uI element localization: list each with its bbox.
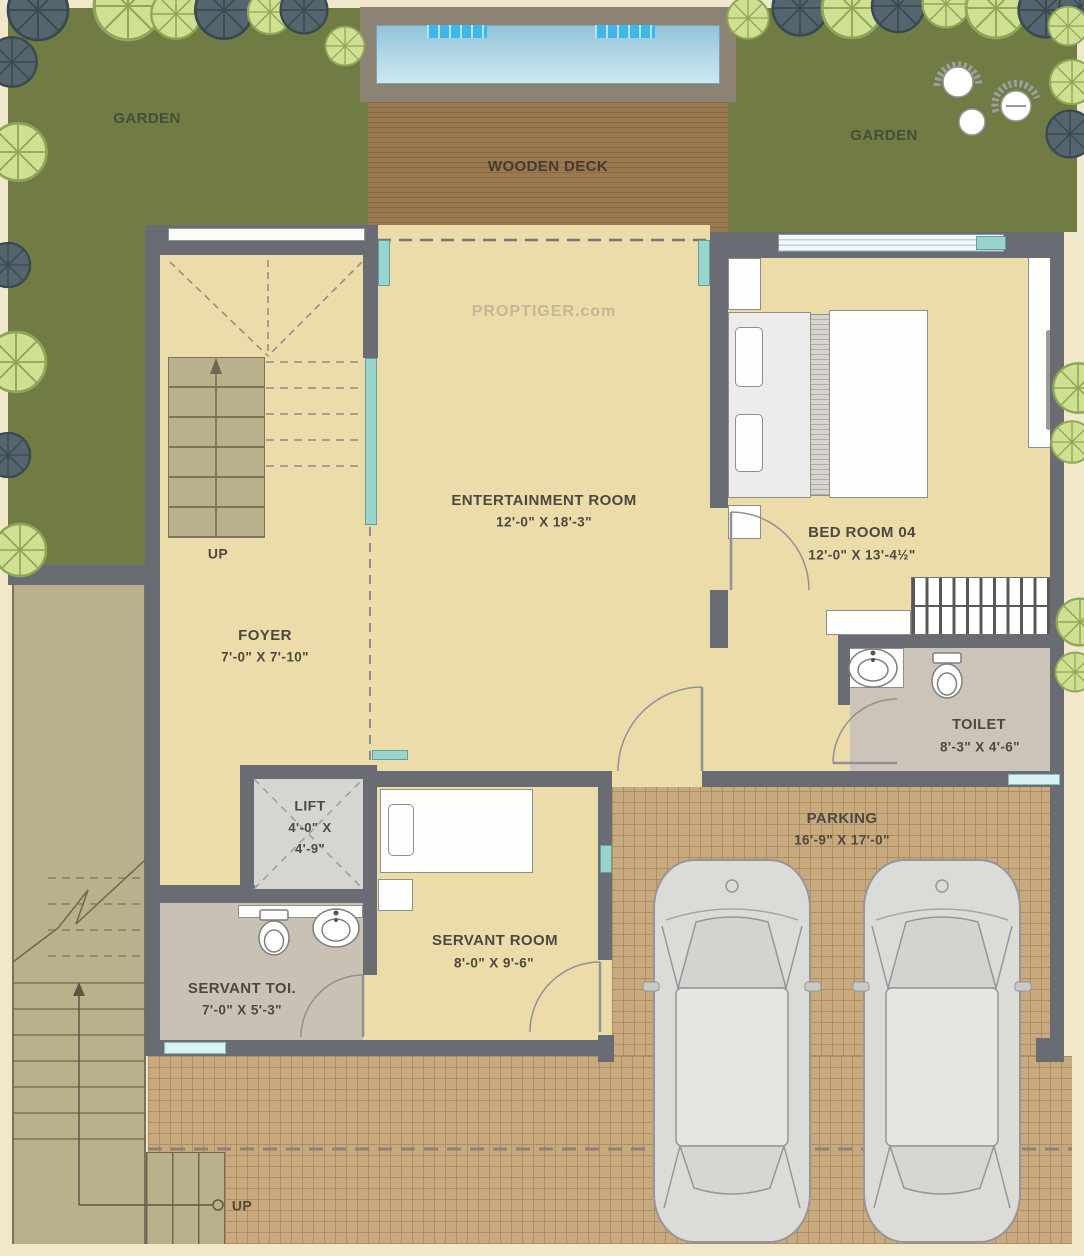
foyer-window <box>168 228 365 241</box>
floor-plan: GARDEN GARDEN WOODEN DECK PROPTIGER.com … <box>0 0 1084 1256</box>
toilet-label: TOILET <box>952 718 1006 734</box>
foyer-label: FOYER <box>238 628 292 645</box>
car-icon <box>643 860 821 1242</box>
parking-dims: 16'-9" X 17'-0" <box>794 834 890 849</box>
entertainment-glass-left <box>378 240 390 286</box>
toilet-fixtures <box>849 649 962 698</box>
trees <box>0 0 1084 691</box>
plan-overlay <box>0 0 1084 1256</box>
entertainment-room-label: ENTERTAINMENT ROOM <box>451 493 636 510</box>
toilet-window <box>1008 774 1060 785</box>
servant-toilet-window <box>164 1042 226 1054</box>
driveway-up-label: UP <box>232 1198 252 1213</box>
foyer-up-label: UP <box>208 546 228 561</box>
servant-toilet-fixtures <box>259 909 359 955</box>
lift-label: LIFT <box>294 798 325 813</box>
foyer-stair-arrow <box>210 358 222 537</box>
servant-toilet-dims: 7'-0" X 5'-3" <box>202 1004 282 1019</box>
servant-room-dims: 8'-0" X 9'-6" <box>454 957 534 972</box>
bedroom-corner-window <box>976 236 1006 250</box>
bedroom-dims: 12'-0" X 13'-4½" <box>808 549 915 564</box>
lift-lobby-window <box>372 750 408 760</box>
servant-room-label: SERVANT ROOM <box>432 933 558 950</box>
lift-dims-line2: 4'-9" <box>295 842 325 856</box>
bedroom-window <box>778 234 1004 252</box>
foyer-side-window <box>365 358 377 525</box>
foyer-dims: 7'-0" X 7'-10" <box>221 651 309 666</box>
servant-toilet-label: SERVANT TOI. <box>188 981 296 998</box>
garden-right-label: GARDEN <box>850 128 917 145</box>
parked-cars <box>643 860 1031 1242</box>
servant-room-window <box>600 845 612 873</box>
entertainment-glass-right <box>698 240 710 286</box>
toilet-dims: 8'-3" X 4'-6" <box>940 741 1020 756</box>
external-stair-details <box>13 860 223 1210</box>
entertainment-room-dims: 12'-0" X 18'-3" <box>496 516 592 531</box>
lift-dims-line1: 4'-0" X <box>288 821 331 835</box>
car-icon <box>853 860 1031 1242</box>
bedroom-label: BED ROOM 04 <box>808 525 916 542</box>
garden-furniture <box>937 65 1037 135</box>
wooden-deck-label: WOODEN DECK <box>488 159 608 176</box>
garden-left-label: GARDEN <box>113 111 180 128</box>
parking-label: PARKING <box>807 811 878 828</box>
